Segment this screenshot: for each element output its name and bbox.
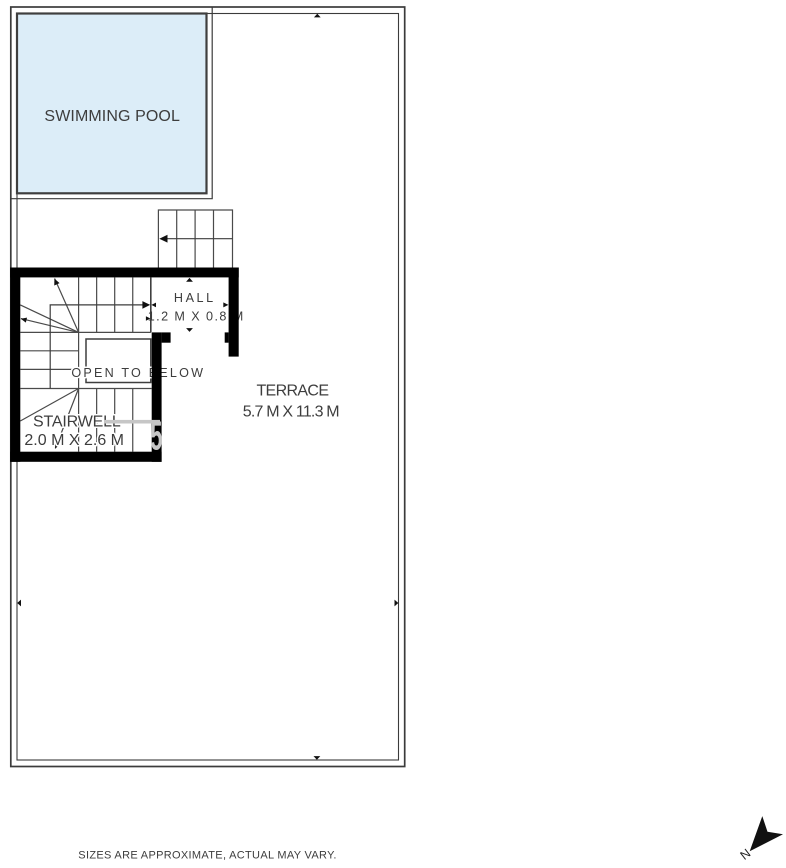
svg-text:5: 5 [151,412,163,458]
svg-text:2.0 M X 2.6 M: 2.0 M X 2.6 M [24,432,124,449]
svg-text:SIZES ARE APPROXIMATE, ACTUAL: SIZES ARE APPROXIMATE, ACTUAL MAY VARY. [78,849,336,861]
svg-text:5.7 M X 11.3 M: 5.7 M X 11.3 M [243,403,340,420]
svg-text:TERRACE: TERRACE [256,383,328,400]
svg-text:HALL: HALL [174,291,216,305]
svg-text:OPEN TO BELOW: OPEN TO BELOW [71,366,205,380]
svg-text:SWIMMING POOL: SWIMMING POOL [44,108,180,125]
